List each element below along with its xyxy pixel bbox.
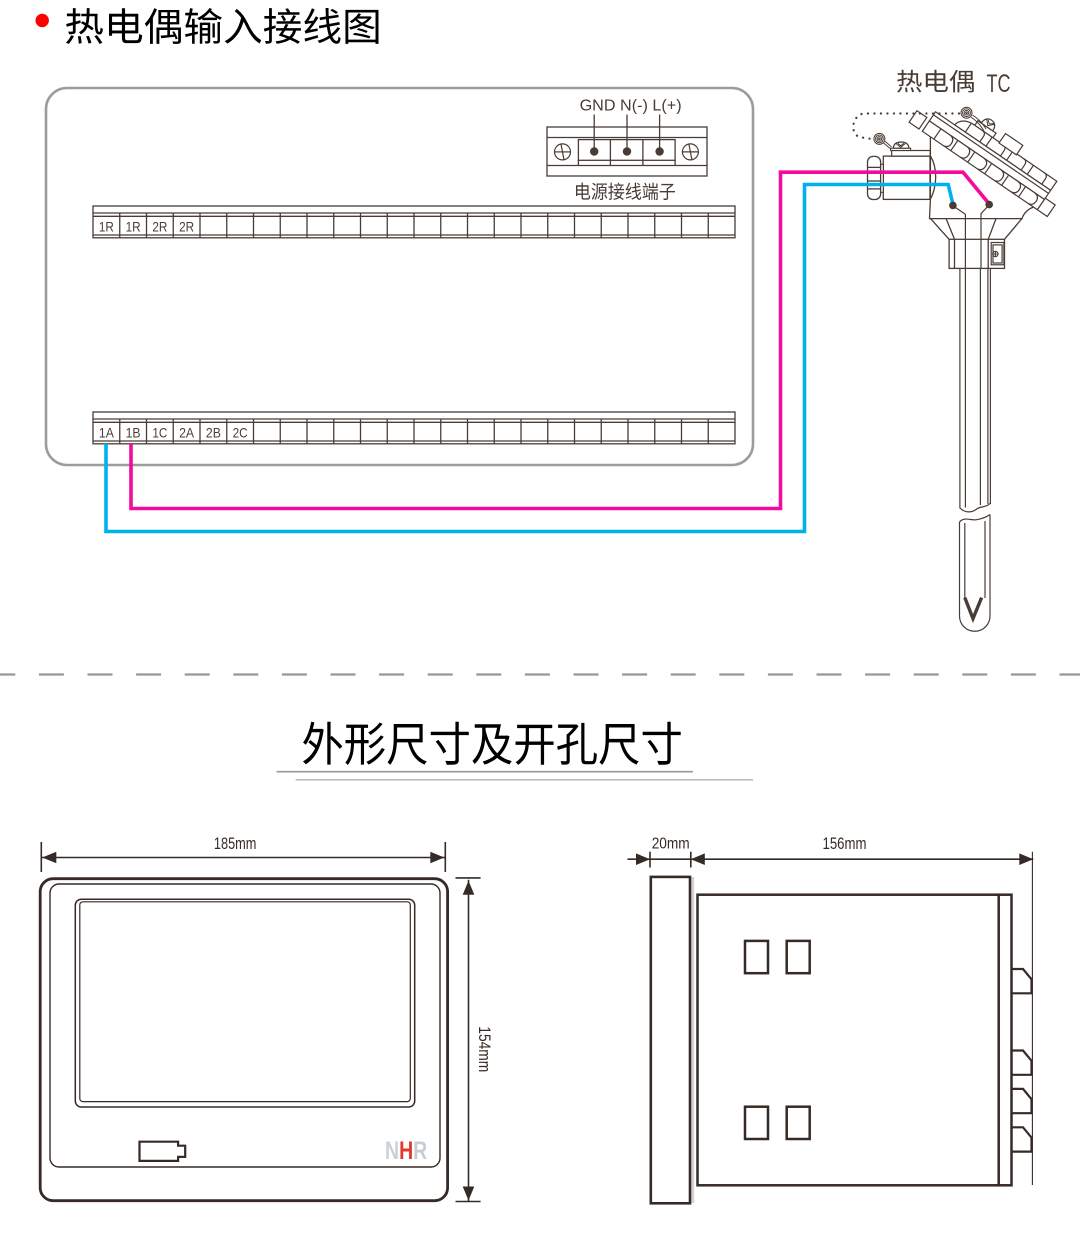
svg-text:154mm: 154mm: [475, 1026, 493, 1072]
svg-text:GND N(-) L(+): GND N(-) L(+): [580, 98, 682, 115]
svg-text:TC: TC: [987, 70, 1011, 98]
svg-text:156mm: 156mm: [823, 835, 867, 853]
svg-text:1C: 1C: [152, 425, 167, 441]
svg-text:185mm: 185mm: [214, 835, 257, 853]
svg-text:2C: 2C: [233, 425, 248, 441]
svg-text:1R: 1R: [126, 219, 141, 235]
svg-text:2R: 2R: [179, 219, 194, 235]
svg-text:1R: 1R: [99, 219, 114, 235]
svg-text:2R: 2R: [152, 219, 167, 235]
svg-text:2B: 2B: [206, 425, 221, 441]
svg-text:2A: 2A: [179, 425, 195, 441]
svg-text:20mm: 20mm: [652, 836, 690, 853]
svg-text:NHR: NHR: [385, 1137, 427, 1165]
svg-text:1A: 1A: [99, 425, 115, 441]
svg-text:1B: 1B: [126, 425, 141, 441]
